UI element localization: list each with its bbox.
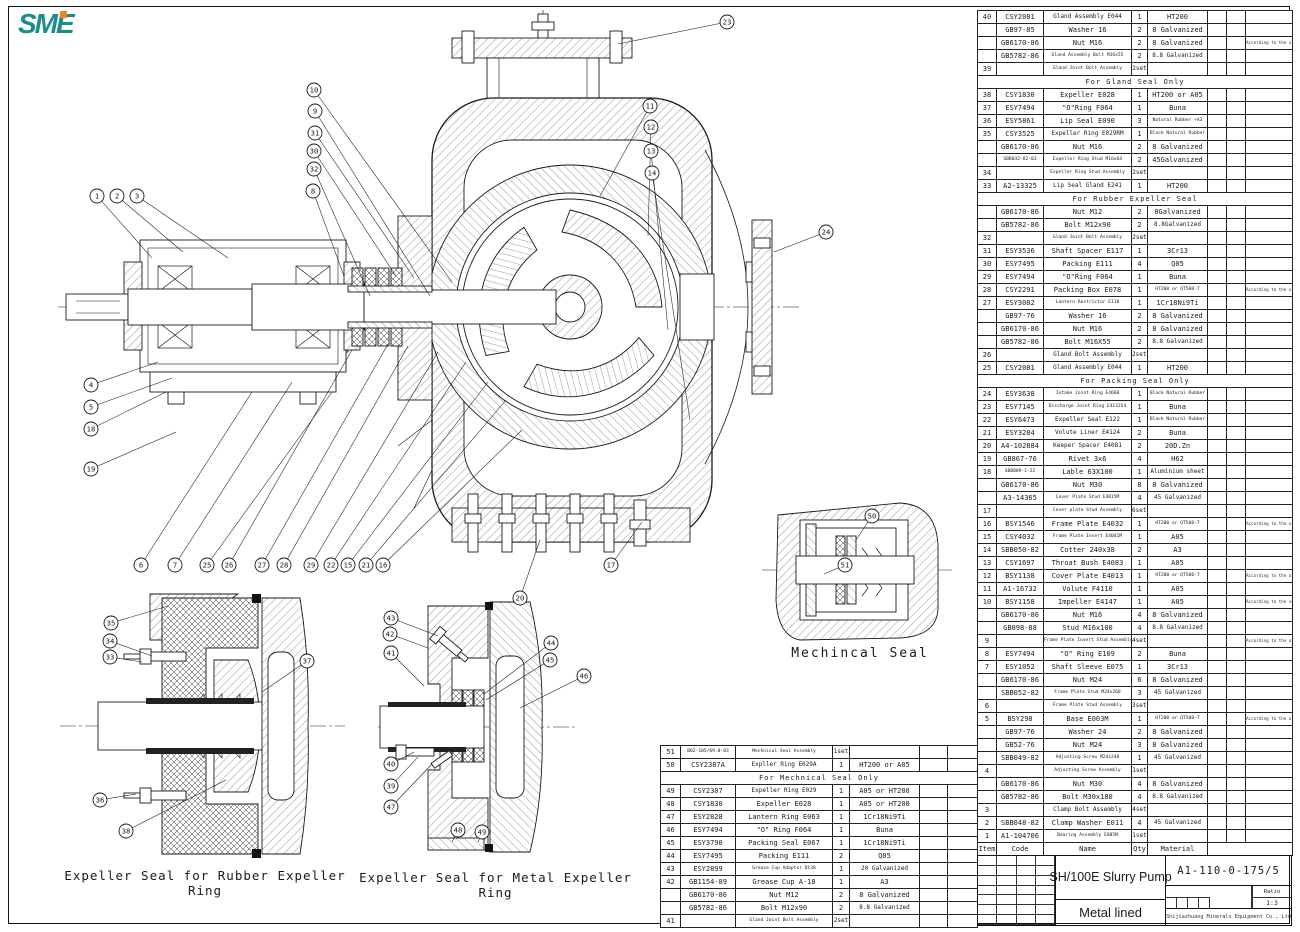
rubber-expeller-label: Expeller Seal for Rubber Expeller Ring (55, 868, 355, 898)
svg-text:38: 38 (122, 827, 131, 836)
table-row: 19GB867-76Rivet 3x64H62 (978, 453, 1293, 466)
table-row: 10BSY1158Impeller E41471A05According to … (978, 596, 1293, 609)
svg-text:39: 39 (387, 782, 396, 791)
table-row: 36ESY5861Lip Seal E0903Natural Rubber +A… (978, 115, 1293, 128)
table-row: GB6170-86Nut M1228 Galvanized (661, 889, 978, 902)
table-row: For Mechnical Seal Only (661, 772, 978, 785)
sme-logo: SME (18, 8, 138, 42)
table-row: SBB032-82-03Expeller Ring Stud M16x64245… (978, 154, 1293, 167)
section-header: For Packing Seal Only (978, 375, 1293, 388)
table-row: 14SBB050-82Cotter 240x382A3 (978, 544, 1293, 557)
table-row: 15CSY4032Frame Plate Insert E4041M1A05 (978, 531, 1293, 544)
svg-text:13: 13 (647, 147, 656, 156)
svg-text:2: 2 (115, 192, 119, 201)
svg-text:20: 20 (516, 594, 525, 603)
svg-text:50: 50 (868, 512, 877, 521)
table-row: 34Expeller Ring Stud Assembly2set (978, 167, 1293, 180)
svg-text:29: 29 (307, 561, 316, 570)
drawing-sheet: 1231093130328231112131424451819672526272… (0, 0, 1300, 932)
table-row: 27ESY3082Lantern Restrictor E11811Cr18Ni… (978, 297, 1293, 310)
table-row: GB97-76Washer 2428 Galvanized (978, 726, 1293, 739)
sme-logo-dot-icon (60, 11, 67, 18)
table-row: GB97-76Washer 1628 Galvanized (978, 310, 1293, 323)
svg-text:25: 25 (203, 561, 212, 570)
table-row: 6Frame Plate Stud Assembly3sets (978, 700, 1293, 713)
svg-text:16: 16 (379, 561, 388, 570)
svg-text:49: 49 (478, 828, 487, 837)
table-row: 31ESY3536Shaft Spacer E11713Cr13 (978, 245, 1293, 258)
mechanical-seal-detail (762, 503, 952, 640)
svg-text:12: 12 (647, 123, 656, 132)
table-row: GB5782-86Bolt M12x9028.8 Galvanized (661, 902, 978, 915)
svg-text:31: 31 (311, 129, 320, 138)
table-row: 25CSY2081Gland Assembly E0441HT200 (978, 362, 1293, 375)
ratio-box: Ratio 1:3 (1166, 886, 1291, 909)
table-row: 33A2-13325Lip Seal Gland E2411HT200 (978, 180, 1293, 193)
drawing-title: SH/100E Slurry Pump (1056, 856, 1165, 900)
table-row: 11A1-16732Volute F41101A05 (978, 583, 1293, 596)
svg-text:3: 3 (135, 192, 139, 201)
table-row: GB6170-86Nut M3088 Galvanized (978, 479, 1293, 492)
table-row: 1A1-104706Bearing Assembly E085M1set (978, 830, 1293, 843)
svg-text:6: 6 (139, 561, 143, 570)
svg-text:46: 46 (580, 672, 589, 681)
table-row: 12BSY1138Cover Plate E40131HT200 or QT50… (978, 570, 1293, 583)
section-header: For Gland Seal Only (978, 76, 1293, 89)
svg-text:7: 7 (173, 561, 177, 570)
table-row: GB6170-86Nut M1628 GalvanizedAccording t… (978, 37, 1293, 50)
svg-text:43: 43 (387, 614, 396, 623)
table-row: 41Gland Joint Bolt Assembly2set (661, 915, 978, 928)
table-row: GB6170-86Nut M3048 Galvanized (978, 778, 1293, 791)
svg-text:32: 32 (310, 165, 319, 174)
table-row: GB52-76Nut M2438 Galvanized (978, 739, 1293, 752)
table-row: 50CSY2387AExpller Ring E029A1HT200 or A0… (661, 759, 978, 772)
svg-text:51: 51 (841, 561, 850, 570)
table-row: GB97-85Washer 1628 Galvanized (978, 24, 1293, 37)
svg-text:28: 28 (280, 561, 289, 570)
svg-text:21: 21 (362, 561, 371, 570)
table-row: 7ESY1052Shaft Sleeve E07513Cr13 (978, 661, 1293, 674)
svg-text:11: 11 (646, 102, 655, 111)
svg-text:36: 36 (96, 796, 105, 805)
table-row: 32Gland Joint Bolt Assembly2set (978, 232, 1293, 245)
table-row: ItemCodeNameQtyMaterial (978, 843, 1293, 856)
svg-text:18: 18 (87, 425, 96, 434)
svg-text:44: 44 (547, 639, 556, 648)
svg-text:9: 9 (313, 107, 317, 116)
svg-text:10: 10 (310, 86, 319, 95)
table-row: 48CSY1830Expeller E0281A05 or HT200 (661, 798, 978, 811)
lining-type: Metal lined (1056, 900, 1165, 925)
main-view (58, 10, 800, 552)
table-row: GB6170-86Nut M1628 Galvanized (978, 323, 1293, 336)
svg-text:24: 24 (822, 228, 831, 237)
table-row: 24ESY3638Intake Joint Ring E46601Black N… (978, 388, 1293, 401)
table-row: GB6170-86Nut M2468 Galvanized (978, 674, 1293, 687)
svg-text:40: 40 (387, 760, 396, 769)
table-row: GB6170-86Nut M1648 Galvanized (978, 609, 1293, 622)
seal-parts-table-grid: 51B02-105/69.0-03Mechnical Seal Assembly… (660, 745, 978, 928)
table-row: 51B02-105/69.0-03Mechnical Seal Assembly… (661, 746, 978, 759)
table-row: 2SBB048-82Clamp Washer E011445 Galvanize… (978, 817, 1293, 830)
table-row: 13CSY1697Throat Bush E40831A05 (978, 557, 1293, 570)
table-row: 47ESY2828Lantern Ring E06311Cr18Ni9Ti (661, 811, 978, 824)
svg-text:27: 27 (258, 561, 267, 570)
table-row: For Packing Seal Only (978, 375, 1293, 388)
table-row: 42GB1154-89Grease Cup A-181A3 (661, 876, 978, 889)
table-row: 22ESY6473Expeller Seal E1221Black Natura… (978, 414, 1293, 427)
svg-text:23: 23 (723, 18, 732, 27)
revision-grid (978, 856, 1056, 925)
company-name: Shijiazhuang Minerals Equipment Co., Ltd (1166, 909, 1291, 925)
table-row: 21ESY3284Volute Liner E41242Buna (978, 427, 1293, 440)
table-row: 43ESY2899Grease Cup Adaptor Dt38120 Galv… (661, 863, 978, 876)
table-row: 18SBB009-1-22Lable 63X1001Aluminium shee… (978, 466, 1293, 479)
svg-text:1: 1 (95, 192, 99, 201)
svg-text:22: 22 (327, 561, 336, 570)
svg-text:34: 34 (106, 637, 115, 646)
svg-text:4: 4 (89, 381, 93, 390)
table-row: 29ESY7494"O"Ring F0641Buna (978, 271, 1293, 284)
table-row: 49CSY2307Expeller Ring E0291A05 or HT200 (661, 785, 978, 798)
table-row: GB6170-86Nut M1228Galvanized (978, 206, 1293, 219)
table-row: GB6170-86Nut M1628 Galvanized (978, 141, 1293, 154)
table-row: GB5782-86Gland Assembly Bolt M16x5528.8 … (978, 50, 1293, 63)
table-row: 8ESY7494"O" Ring E1092Buna (978, 648, 1293, 661)
table-row: GB898-88Stud M16x10048.8 Galvanized (978, 622, 1293, 635)
seal-parts-table: 51B02-105/69.0-03Mechnical Seal Assembly… (660, 745, 977, 928)
rubber-expeller-detail (60, 594, 345, 858)
table-row: 17Cover plate Stud Assembly6sets (978, 505, 1293, 518)
metal-expeller-label: Expeller Seal for Metal Expeller Ring (348, 870, 643, 900)
table-row: 35CSY3525Expeller Ring E029RM1Black Natu… (978, 128, 1293, 141)
section-header: For Rubber Expeller Seal (978, 193, 1293, 206)
table-row: 38CSY1830Expeller E0281HT200 or A05 (978, 89, 1293, 102)
table-row: SBB052-82Frame Plate Stud M24x260345 Gal… (978, 687, 1293, 700)
table-row: 9Frame Plate Insert Stud Assembly4setsAc… (978, 635, 1293, 648)
table-row: 28CSY2291Packing Box E0781HT200 or QT500… (978, 284, 1293, 297)
table-row: 16BSY1546Frame Plate E40321HT200 or QT50… (978, 518, 1293, 531)
ratio-value: 1:3 (1252, 897, 1291, 908)
table-row: 23ESY7145Discharge Joint Ring E4132S41Bu… (978, 401, 1293, 414)
svg-text:19: 19 (87, 465, 96, 474)
svg-text:15: 15 (344, 561, 353, 570)
table-row: GB5782-86Bolt M30x18048.8 Galvanized (978, 791, 1293, 804)
table-row: SBB049-82Adjusting Screw M24x240145 Galv… (978, 752, 1293, 765)
svg-text:37: 37 (303, 657, 312, 666)
table-row: 45ESY3790Packing Seal E06711Cr18Ni9Ti (661, 837, 978, 850)
parts-table: 40CSY2081Gland Assembly E0441HT200GB97-8… (977, 10, 1292, 856)
parts-table-grid: 40CSY2081Gland Assembly E0441HT200GB97-8… (977, 10, 1293, 856)
table-row: For Rubber Expeller Seal (978, 193, 1293, 206)
svg-text:17: 17 (607, 561, 616, 570)
svg-text:47: 47 (387, 803, 396, 812)
table-row: 30ESY7495Packing E1114Q05 (978, 258, 1293, 271)
svg-text:41: 41 (387, 649, 396, 658)
table-row: 44ESY7495Packing E1112Q05 (661, 850, 978, 863)
svg-text:42: 42 (386, 630, 395, 639)
section-header: For Mechnical Seal Only (661, 772, 978, 785)
table-row: 3Clamp Bolt Assembly4set (978, 804, 1293, 817)
table-row: GB5782-86Bolt M12x9028.8Galvanized (978, 219, 1293, 232)
drawing-number: A1-110-0-175/5 (1166, 856, 1291, 886)
table-row: 46ESY7494"O" Ring F0641Buna (661, 824, 978, 837)
svg-text:48: 48 (454, 826, 463, 835)
svg-text:26: 26 (225, 561, 234, 570)
svg-text:8: 8 (311, 187, 315, 196)
table-row: 40CSY2081Gland Assembly E0441HT200 (978, 11, 1293, 24)
table-row: 37ESY7494"O"Ring F0641Buna (978, 102, 1293, 115)
ratio-label: Ratio (1252, 886, 1291, 897)
svg-text:35: 35 (107, 619, 116, 628)
table-row: 20A4-102884Keeper Spacer E4081220D.Zn (978, 440, 1293, 453)
table-row: 5BSY298Base E003M1HT200 or QT500-7Accord… (978, 713, 1293, 726)
svg-text:33: 33 (106, 653, 115, 662)
svg-text:30: 30 (310, 147, 319, 156)
svg-text:14: 14 (648, 169, 657, 178)
table-row: GB5782-86Bolt M16X5528.8 Galvanized (978, 336, 1293, 349)
table-row: A3-14365Cover Plate Stud E4015M445 Galva… (978, 492, 1293, 505)
table-row: 39Gland Joint Bolt Assembly2set (978, 63, 1293, 76)
mechanical-seal-label: Mechincal Seal (760, 646, 960, 661)
table-row: 4Adjusting Screw Assembly1set (978, 765, 1293, 778)
table-row: 26Gland Bolt Assembly2sets (978, 349, 1293, 362)
svg-text:45: 45 (546, 656, 555, 665)
title-block: SH/100E Slurry Pump Metal lined A1-110-0… (977, 855, 1292, 926)
table-row: For Gland Seal Only (978, 76, 1293, 89)
svg-text:5: 5 (89, 403, 93, 412)
